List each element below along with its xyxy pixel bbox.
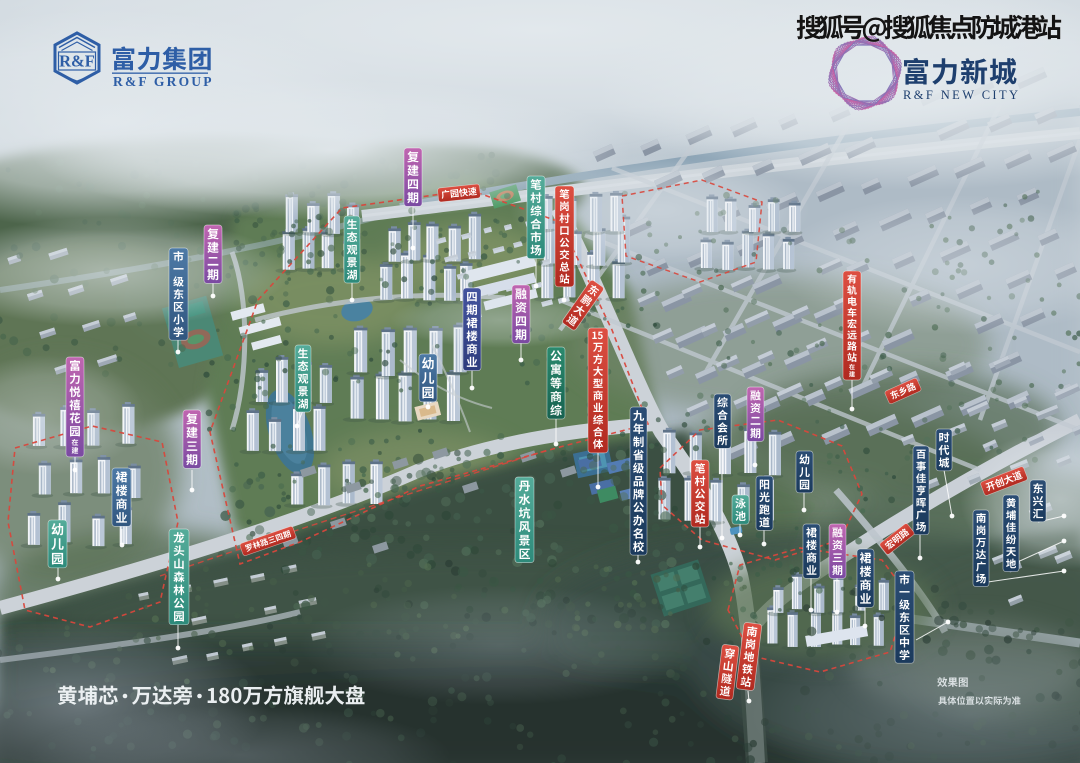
svg-text:R&F NEW CITY: R&F NEW CITY	[903, 88, 1020, 102]
svg-text:R&F: R&F	[59, 52, 95, 71]
svg-text:R&F GROUP: R&F GROUP	[113, 74, 214, 89]
